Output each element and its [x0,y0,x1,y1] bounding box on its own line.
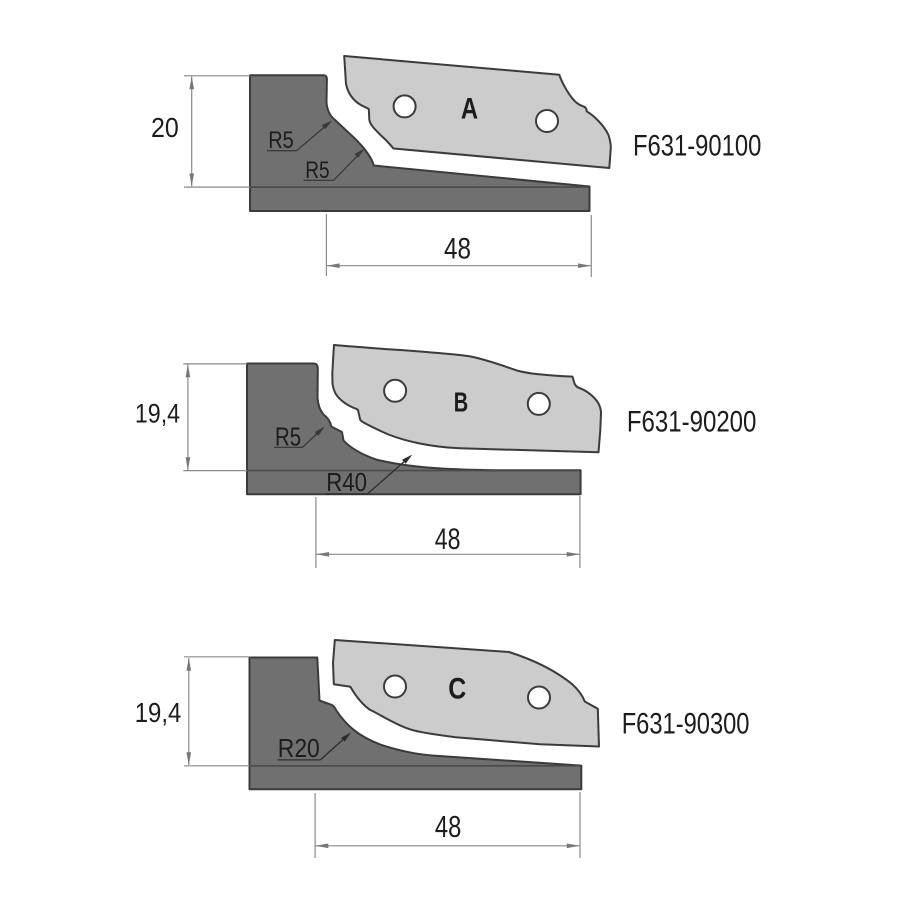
svg-text:19,4: 19,4 [135,399,180,429]
svg-text:C: C [448,673,466,706]
svg-text:48: 48 [444,233,471,266]
svg-text:B: B [454,387,468,418]
svg-text:R20: R20 [278,733,320,763]
svg-text:A: A [461,93,478,126]
svg-text:20: 20 [151,112,179,143]
svg-text:F631-90100: F631-90100 [633,129,761,162]
svg-text:48: 48 [435,810,461,844]
svg-text:F631-90200: F631-90200 [627,405,757,438]
svg-text:48: 48 [435,523,461,556]
svg-text:R40: R40 [326,469,367,497]
svg-text:F631-90300: F631-90300 [622,708,750,741]
svg-text:19,4: 19,4 [135,697,182,728]
